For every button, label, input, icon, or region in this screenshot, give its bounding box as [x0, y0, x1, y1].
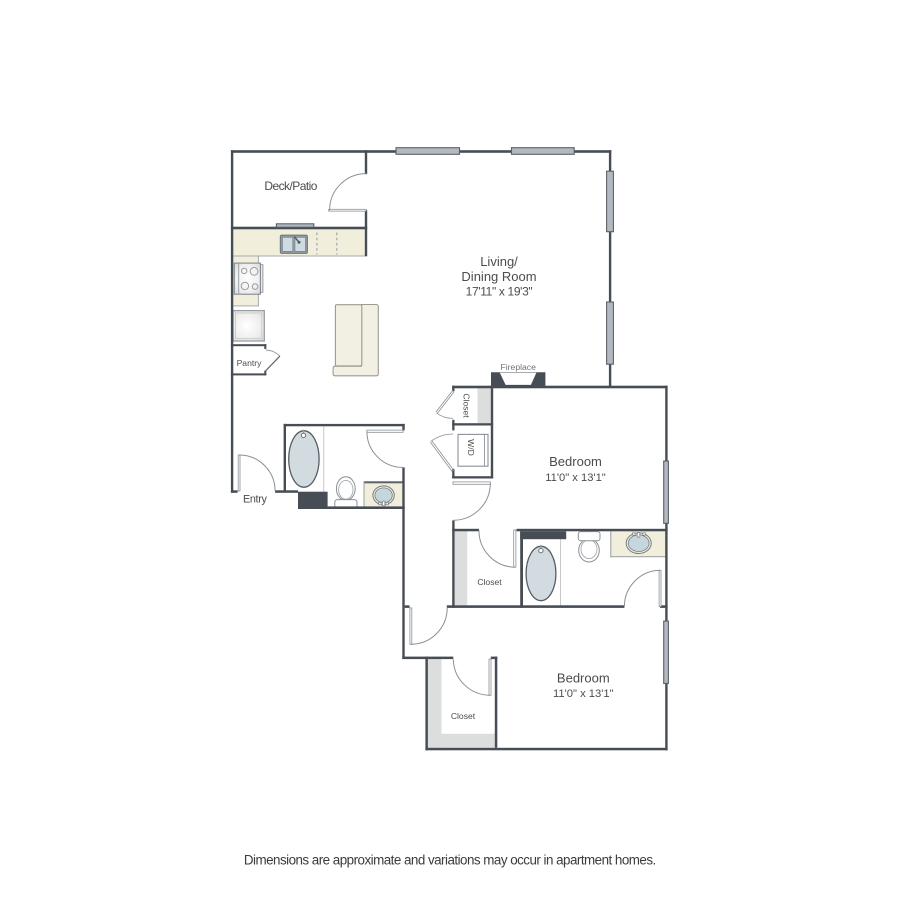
svg-text:Dining Room: Dining Room — [461, 269, 536, 284]
svg-text:Fireplace: Fireplace — [501, 362, 537, 372]
svg-text:Closet: Closet — [451, 711, 476, 721]
svg-text:Dimensions are approximate and: Dimensions are approximate and variation… — [244, 853, 656, 868]
svg-text:Closet: Closet — [477, 577, 502, 587]
svg-text:Bedroom: Bedroom — [557, 671, 610, 686]
svg-text:11'0" x 13'1": 11'0" x 13'1" — [545, 472, 606, 484]
svg-text:Living/: Living/ — [480, 254, 518, 269]
svg-text:Entry: Entry — [243, 493, 268, 505]
svg-text:17'11" x 19'3": 17'11" x 19'3" — [466, 285, 533, 299]
svg-text:Closet: Closet — [462, 393, 472, 418]
svg-text:Bedroom: Bedroom — [549, 454, 602, 469]
svg-text:Deck/Patio: Deck/Patio — [264, 179, 317, 193]
svg-text:11'0" x 13'1": 11'0" x 13'1" — [553, 688, 614, 700]
svg-text:Pantry: Pantry — [237, 358, 263, 368]
svg-text:W/D: W/D — [466, 439, 476, 456]
